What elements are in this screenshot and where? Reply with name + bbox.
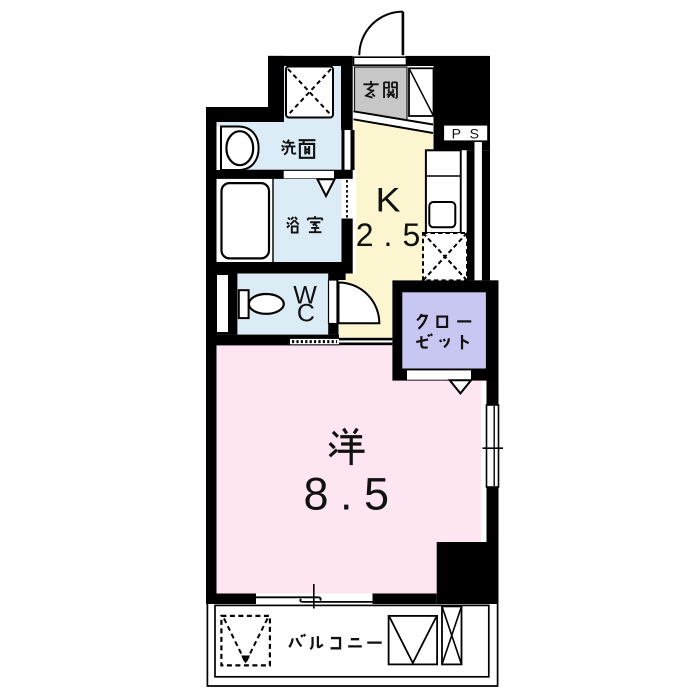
svg-text:C: C [297,299,315,327]
svg-text:2.5: 2.5 [356,217,430,253]
svg-text:K: K [376,182,401,220]
svg-text:8.5: 8.5 [303,469,400,520]
svg-text:P S: P S [452,125,482,141]
